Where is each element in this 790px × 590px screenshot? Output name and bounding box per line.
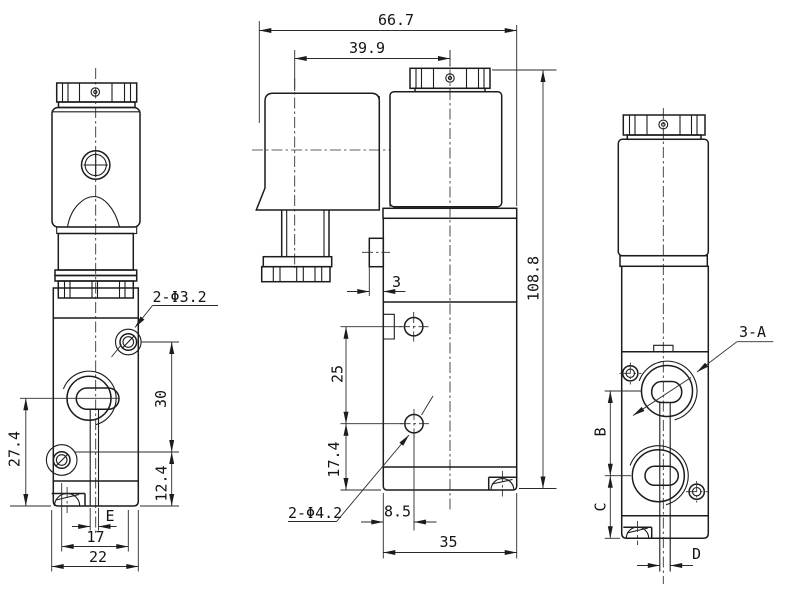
port-a-top [639,361,697,420]
dim-front-hole-spacing: 30 [152,390,170,408]
side-exhaust-notch [489,471,517,497]
side-view: 66.7 39.9 108.8 3 25 17.4 [252,11,557,559]
dim-front-center-to-bottom: 27.4 [6,431,24,467]
dim-side-port-pitch: 25 [329,365,347,383]
dim-port-to-bottom: C [592,502,610,511]
front-coil-arch [68,197,120,228]
front-view: 27.4 30 12.4 E 17 22 [6,68,219,572]
dim-side-port-to-bottom: 17.4 [325,441,343,477]
dim-coil-center-offset: 39.9 [349,39,385,57]
front-mount-hole-bottom [46,445,77,476]
dim-overall-height: 108.8 [525,256,543,301]
dim-front-slot-width: E [105,507,114,525]
dim-side-hole-offset: 8.5 [384,503,411,521]
drawing-canvas: 27.4 30 12.4 E 17 22 [0,0,790,590]
dim-side-holes-label: 2-Φ4.2 [288,504,342,522]
side-body [362,208,517,496]
port-view: 3-A B C D [592,108,774,584]
side-coil [390,50,502,512]
port-cap [623,115,705,139]
dim-front-width: 22 [89,548,107,566]
dim-front-holes-pitch: 17 [86,528,104,546]
port-hole-topleft [620,363,642,385]
port-hole-bottomright [686,481,708,503]
side-tab [362,238,390,266]
dim-side-tab-depth: 3 [392,273,401,291]
front-exhaust-notch [52,487,85,513]
front-body [46,288,141,513]
port-body [620,266,709,571]
front-cap [57,83,137,108]
side-hole-top [399,312,429,342]
dim-front-hole-to-bottom: 12.4 [153,465,171,501]
valve-drawing-svg: 27.4 30 12.4 E 17 22 [0,0,790,590]
cable-gland [262,210,332,282]
dim-front-holes-label: 2-Φ3.2 [153,288,207,306]
port-dimensions: 3-A B C D [592,323,774,566]
dim-port-pitch: B [592,427,610,436]
dim-ports-label: 3-A [739,323,766,341]
front-dimensions: 27.4 30 12.4 E 17 22 [6,288,219,572]
port-a-bottom [630,446,688,505]
port-exhaust-notch [623,521,651,545]
dim-slot-width: D [692,545,701,563]
dim-overall-width: 66.7 [378,11,414,29]
dim-side-width: 35 [439,533,457,551]
front-mount-hole-top [116,329,142,355]
